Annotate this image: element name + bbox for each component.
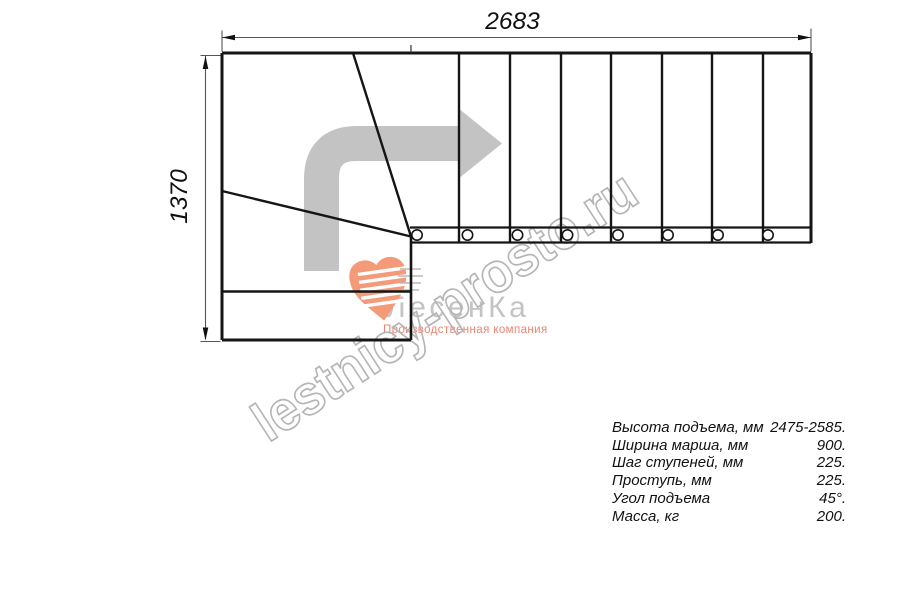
spec-label: Шаг ступеней, мм: [612, 454, 743, 472]
spec-row: Шаг ступеней, мм 225.: [612, 454, 846, 472]
spec-value: 225.: [817, 454, 846, 472]
spec-row: Высота подъема, мм 2475-2585.: [612, 419, 846, 437]
spec-label: Ширина марша, мм: [612, 437, 748, 455]
spec-label: Масса, кг: [612, 508, 679, 526]
spec-row: Масса, кг 200.: [612, 508, 846, 526]
height-dimension-label: 1370: [166, 169, 193, 224]
spec-row: Ширина марша, мм 900.: [612, 437, 846, 455]
watermark-text: lestnicy-prosto.ru: [241, 158, 649, 453]
width-dimension-label: 2683: [484, 8, 540, 35]
spec-label: Высота подъема, мм: [612, 419, 764, 437]
spec-label: Угол подъема: [612, 490, 710, 508]
spec-value: 200.: [817, 508, 846, 526]
spec-value: 2475-2585.: [770, 419, 846, 437]
spec-value: 900.: [817, 437, 846, 455]
spec-value: 45°.: [819, 490, 846, 508]
stair-plan-canvas: ЛесенКа Производственная компания: [0, 0, 900, 600]
spec-row: Проступь, мм 225.: [612, 472, 846, 490]
spec-row: Угол подъема 45°.: [612, 490, 846, 508]
spec-table: Высота подъема, мм 2475-2585. Ширина мар…: [612, 419, 846, 525]
spec-label: Проступь, мм: [612, 472, 712, 490]
spec-value: 225.: [817, 472, 846, 490]
